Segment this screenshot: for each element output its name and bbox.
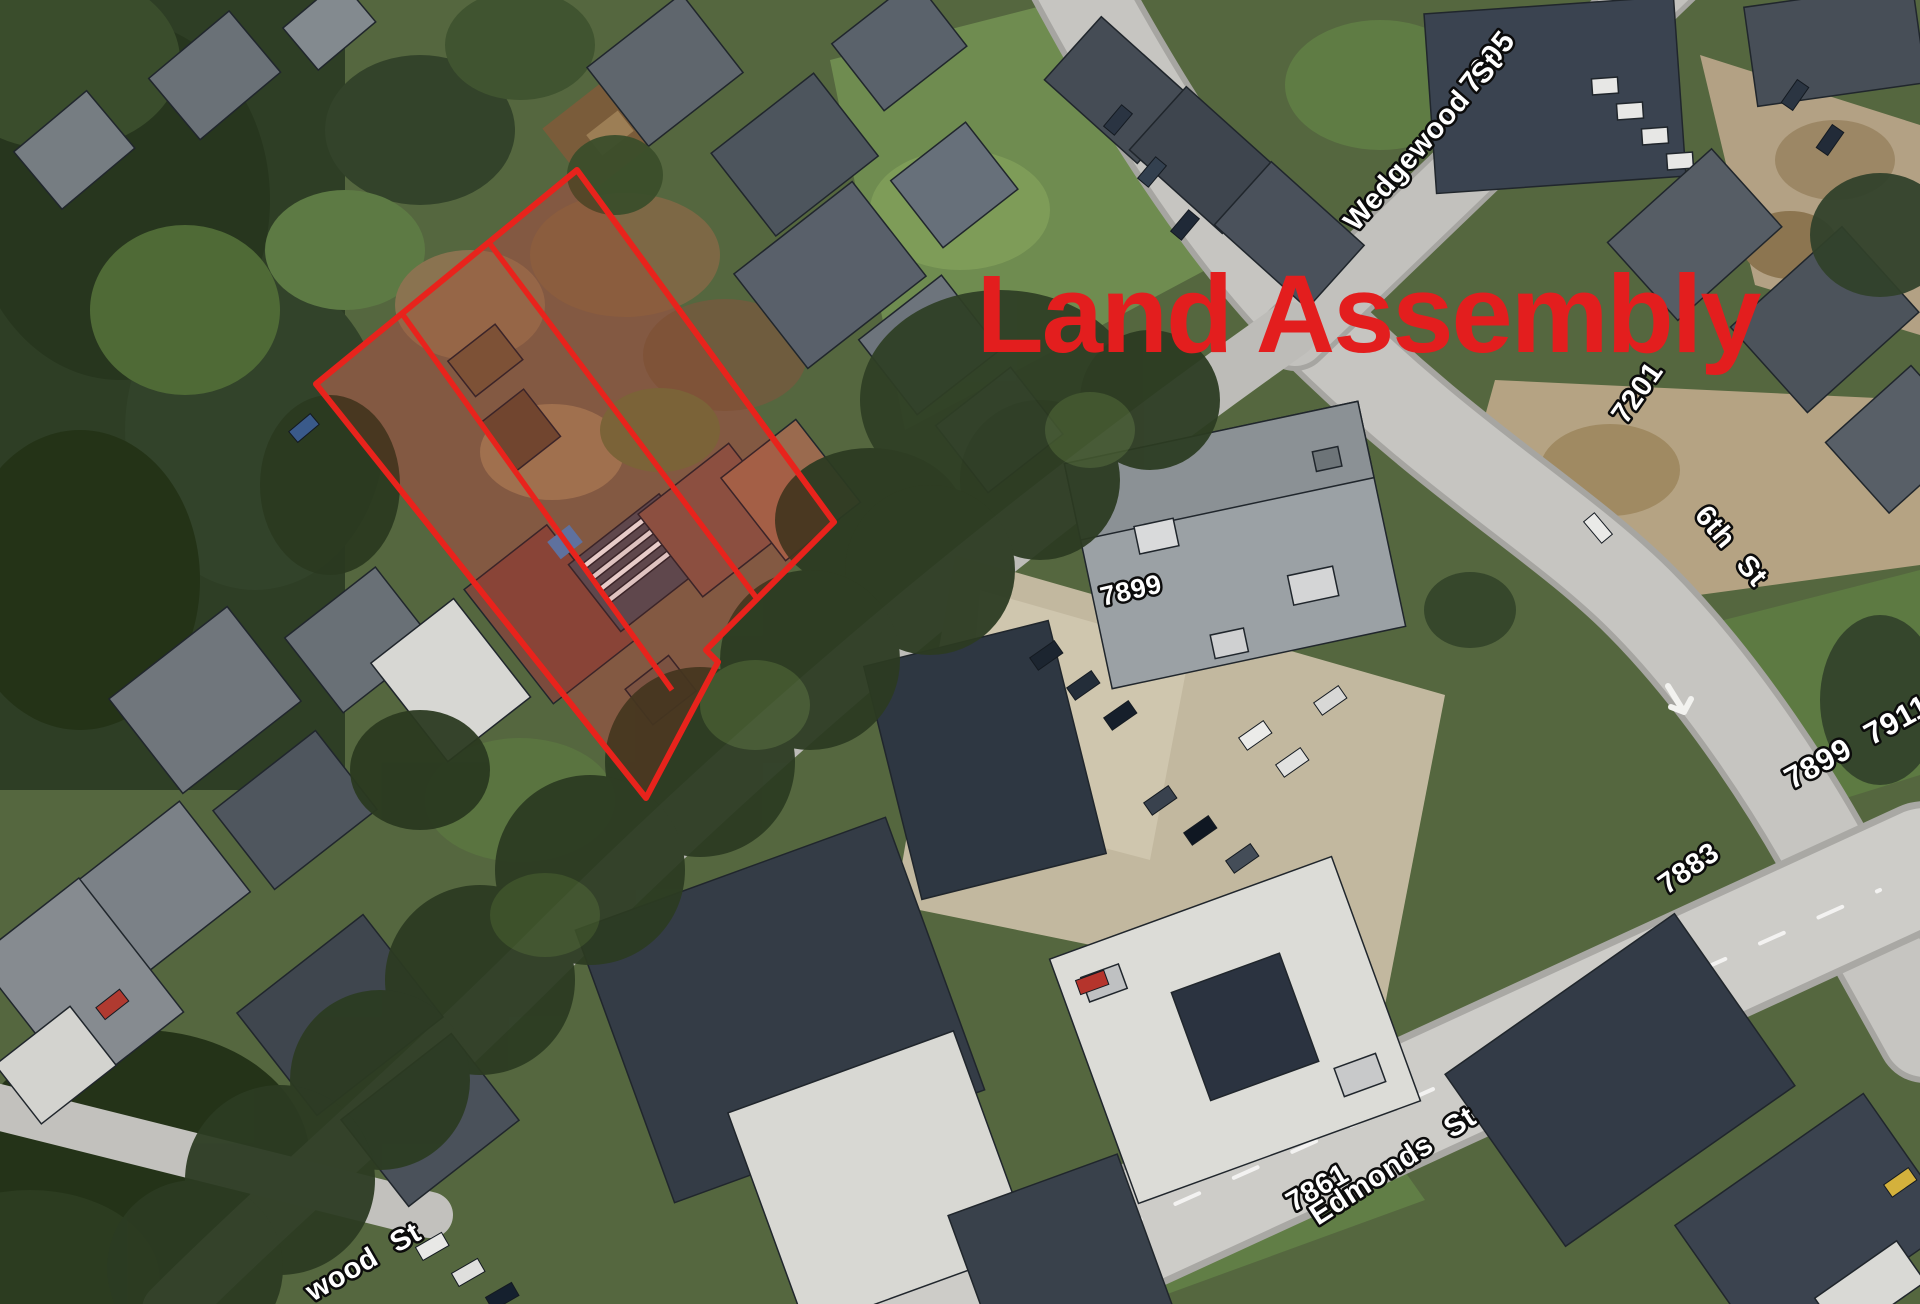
aerial-photo-canvas: 7995 Wedgewood St 7201 6th St 7899 7899 … (0, 0, 1920, 1304)
satellite-map-image: 7995 Wedgewood St 7201 6th St 7899 7899 … (0, 0, 1920, 1304)
land-assembly-title: Land Assembly (977, 253, 1762, 376)
